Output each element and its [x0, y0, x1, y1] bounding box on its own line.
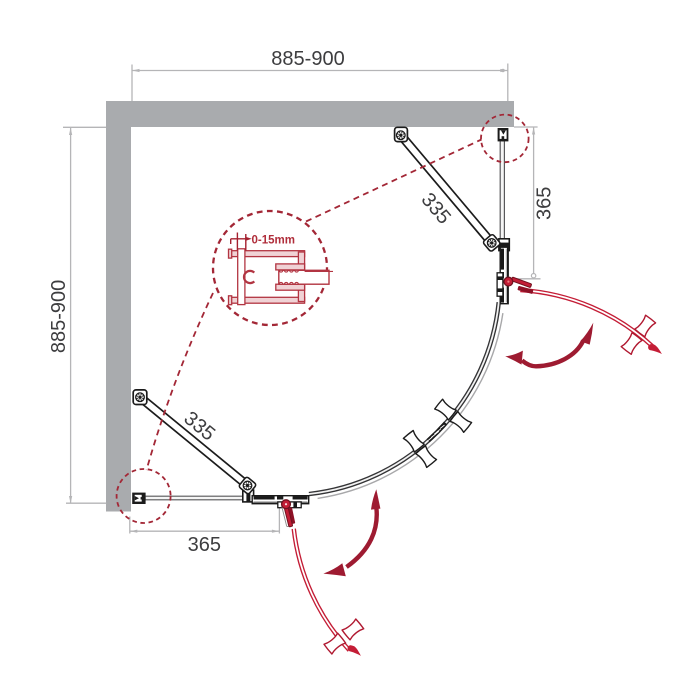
svg-text:885-900: 885-900	[48, 280, 70, 353]
svg-text:0-15mm: 0-15mm	[252, 234, 295, 246]
svg-text:365: 365	[534, 187, 556, 220]
svg-text:365: 365	[188, 534, 221, 556]
svg-text:885-900: 885-900	[271, 48, 344, 70]
